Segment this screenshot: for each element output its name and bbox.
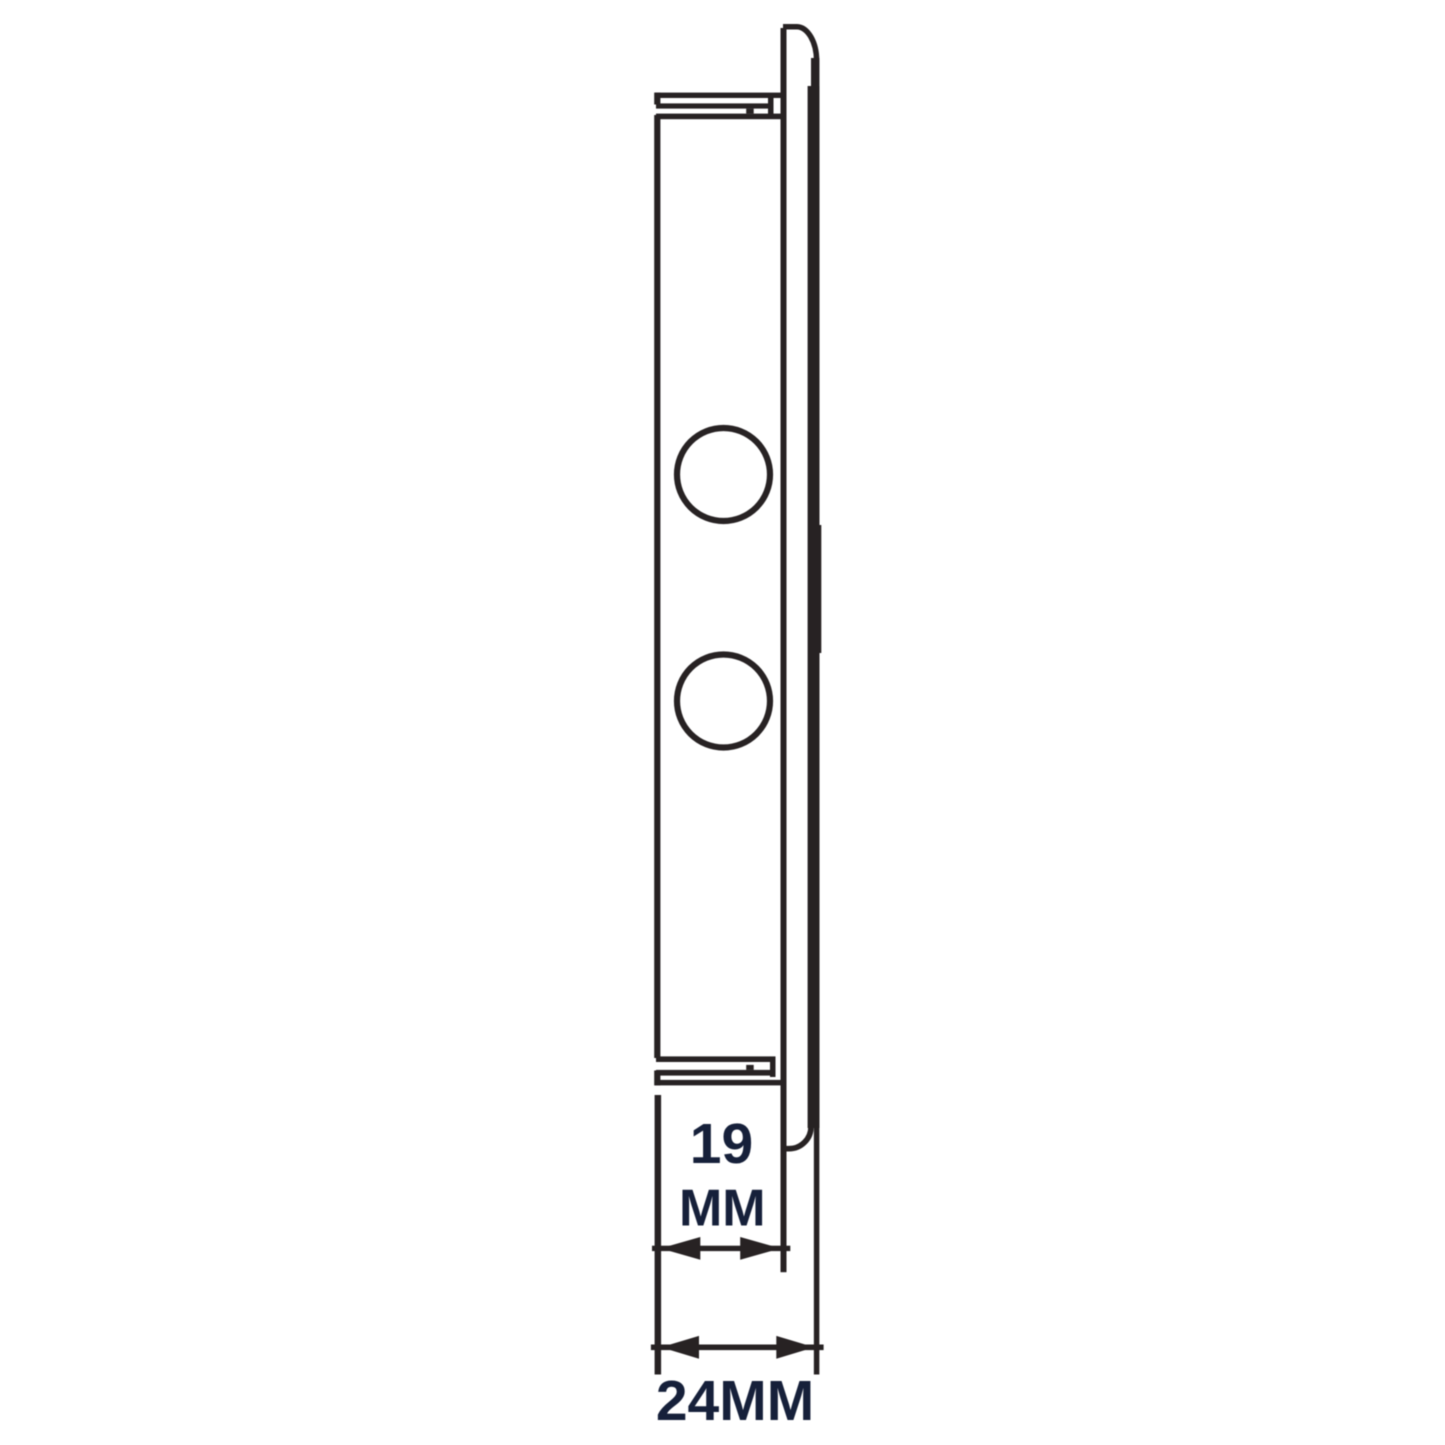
svg-text:19: 19	[690, 1112, 753, 1176]
svg-text:24MM: 24MM	[656, 1369, 814, 1433]
svg-text:MM: MM	[679, 1179, 766, 1237]
